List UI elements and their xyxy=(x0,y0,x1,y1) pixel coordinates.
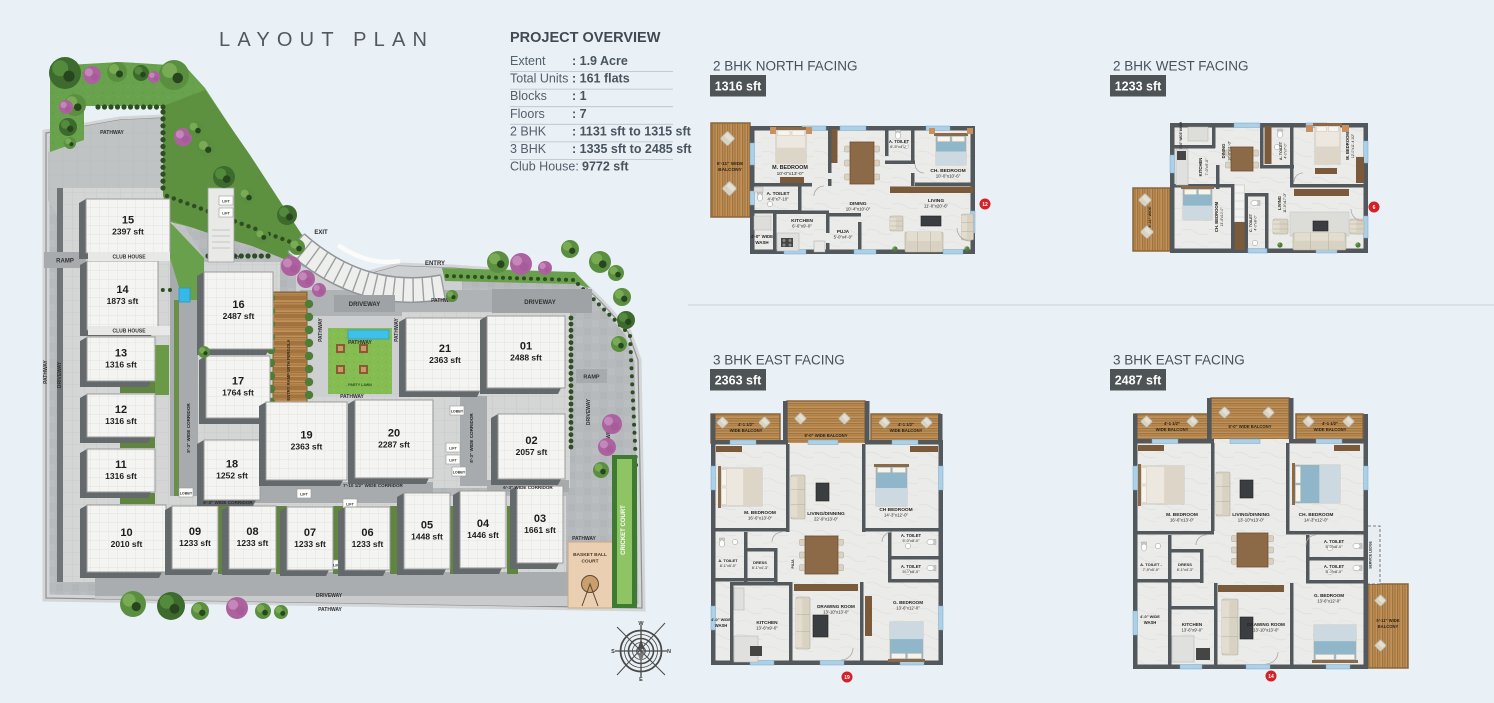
svg-text:PUJA: PUJA xyxy=(837,229,850,234)
svg-text:09: 09 xyxy=(189,526,201,538)
svg-text:05: 05 xyxy=(421,520,433,532)
svg-text:A. TOILET: A. TOILET xyxy=(1324,564,1345,569)
svg-text:20: 20 xyxy=(388,428,400,440)
svg-text:1316 sft: 1316 sft xyxy=(715,80,762,94)
svg-text:DINING: DINING xyxy=(1221,144,1226,159)
svg-text:13'-6"x9'-0": 13'-6"x9'-0" xyxy=(756,626,778,631)
svg-text:4'-0" WIDE: 4'-0" WIDE xyxy=(1140,614,1160,619)
svg-text:PATHWAY: PATHWAY xyxy=(100,130,124,136)
svg-text:PATHWAY: PATHWAY xyxy=(318,607,342,613)
svg-text:: 161 flats: : 161 flats xyxy=(572,72,630,86)
svg-text:A. TOILET: A. TOILET xyxy=(1324,539,1345,544)
svg-text:CRICKET COURT: CRICKET COURT xyxy=(621,505,627,555)
svg-text:LOBBY: LOBBY xyxy=(180,492,193,496)
svg-text:11: 11 xyxy=(115,459,127,471)
svg-text:7'-10 1/2" WIDE CORRIDOR: 7'-10 1/2" WIDE CORRIDOR xyxy=(343,483,403,488)
svg-text:: 1131 sft to 1315 sft: : 1131 sft to 1315 sft xyxy=(572,124,692,138)
svg-text:13'-10"x13'-0": 13'-10"x13'-0" xyxy=(823,609,849,614)
svg-text:2397 sft: 2397 sft xyxy=(112,227,144,237)
svg-text:1448 sft: 1448 sft xyxy=(411,532,443,542)
svg-text:WASH: WASH xyxy=(1144,620,1157,625)
svg-text:LIFT: LIFT xyxy=(222,200,230,204)
svg-text:1233 sft: 1233 sft xyxy=(1115,80,1162,94)
svg-text:7'-9"x5'-0": 7'-9"x5'-0" xyxy=(1143,568,1160,572)
svg-text:10'-4"x10'-0": 10'-4"x10'-0" xyxy=(846,207,871,212)
svg-text:3 BHK EAST FACING: 3 BHK EAST FACING xyxy=(1113,353,1245,368)
svg-text:9772 sft: 9772 sft xyxy=(582,160,629,174)
svg-text:3'-10" WIDE WASH: 3'-10" WIDE WASH xyxy=(1179,121,1183,150)
svg-text:DRAWING ROOM: DRAWING ROOM xyxy=(817,604,855,609)
svg-text:10'-0"x10'-6": 10'-0"x10'-6" xyxy=(936,174,961,179)
svg-text:12: 12 xyxy=(982,202,988,208)
svg-text:PUJA: PUJA xyxy=(791,559,795,569)
svg-text:WASH: WASH xyxy=(755,240,768,245)
svg-text:13'-10"x13'-0": 13'-10"x13'-0" xyxy=(1253,627,1279,632)
svg-text:Floors: Floors xyxy=(510,107,545,121)
svg-text:17: 17 xyxy=(232,376,244,388)
svg-text:ENTRY RAMP WITH PERGOLA: ENTRY RAMP WITH PERGOLA xyxy=(286,339,291,400)
svg-text:CLUB HOUSE: CLUB HOUSE xyxy=(112,329,146,335)
svg-text:6'-3" WIDE CORRIDOR: 6'-3" WIDE CORRIDOR xyxy=(203,500,253,505)
svg-text:1233 sft: 1233 sft xyxy=(237,538,269,548)
svg-text:N: N xyxy=(667,649,671,655)
svg-text:1316 sft: 1316 sft xyxy=(105,416,137,426)
svg-text:Blocks: Blocks xyxy=(510,89,547,103)
svg-text:15: 15 xyxy=(122,215,134,227)
svg-text:11'-0"x20'-6": 11'-0"x20'-6" xyxy=(924,204,949,209)
svg-text:8'-0" WIDE BALCONY: 8'-0" WIDE BALCONY xyxy=(805,433,848,438)
svg-text:2010 sft: 2010 sft xyxy=(111,539,143,549)
svg-text:01: 01 xyxy=(520,341,532,353)
svg-text:5'-0"x8'-0": 5'-0"x8'-0" xyxy=(1325,545,1343,549)
svg-text:14'-3"x12'-0": 14'-3"x12'-0" xyxy=(884,513,909,518)
svg-text:19: 19 xyxy=(844,675,850,681)
svg-text:10'-0"x11'-0": 10'-0"x11'-0" xyxy=(1228,140,1232,161)
svg-text:1446 sft: 1446 sft xyxy=(467,530,499,540)
svg-text:13'-6"x12'-0": 13'-6"x12'-0" xyxy=(896,605,920,610)
svg-text:3 BHK: 3 BHK xyxy=(510,142,547,156)
svg-text:LAYOUT PLAN: LAYOUT PLAN xyxy=(219,29,434,51)
svg-text:13'-10"x13'-0": 13'-10"x13'-0" xyxy=(1238,518,1265,523)
svg-text:1661 sft: 1661 sft xyxy=(524,525,556,535)
svg-text:8'-0" WIDE BALCONY: 8'-0" WIDE BALCONY xyxy=(1229,424,1272,429)
svg-text:LIFT: LIFT xyxy=(222,212,230,216)
svg-text:2363 sft: 2363 sft xyxy=(291,442,323,452)
svg-text:1873 sft: 1873 sft xyxy=(107,296,139,306)
svg-text:4'-0"x7'-0": 4'-0"x7'-0" xyxy=(1284,143,1288,159)
svg-text:4'-1 1/2": 4'-1 1/2" xyxy=(1164,421,1180,426)
svg-text:Extent: Extent xyxy=(510,54,546,68)
svg-text:6'-3" WIDE CORRIDOR: 6'-3" WIDE CORRIDOR xyxy=(503,485,553,490)
svg-text:22'-9"x13'-0": 22'-9"x13'-0" xyxy=(814,517,839,522)
svg-text:M. BEDROOM: M. BEDROOM xyxy=(1345,132,1350,160)
svg-text:DRESS: DRESS xyxy=(753,560,767,565)
svg-text:21: 21 xyxy=(439,343,451,355)
svg-text:BALCONY: BALCONY xyxy=(1378,624,1399,629)
svg-text:PATHWAY: PATHWAY xyxy=(340,394,364,400)
svg-text:Club House:: Club House: xyxy=(510,160,579,174)
svg-text:COURT: COURT xyxy=(581,559,598,565)
svg-text:18: 18 xyxy=(226,459,238,471)
svg-text:DRESS: DRESS xyxy=(1178,562,1192,567)
svg-text:: 1: : 1 xyxy=(572,89,587,103)
svg-text:5'-0"x8'-0": 5'-0"x8'-0" xyxy=(902,570,920,574)
svg-text:2057 sft: 2057 sft xyxy=(516,447,548,457)
svg-text:E: E xyxy=(639,677,643,683)
svg-text:5'-11" WIDE: 5'-11" WIDE xyxy=(717,161,744,167)
svg-text:ENTRY: ENTRY xyxy=(425,261,445,267)
svg-text:BALCONY: BALCONY xyxy=(718,167,743,173)
svg-text:5'-0"x8'-0": 5'-0"x8'-0" xyxy=(902,539,920,543)
svg-text:LOBBY: LOBBY xyxy=(453,471,466,475)
svg-text:EXIT: EXIT xyxy=(314,230,328,236)
svg-text:CLUB HOUSE: CLUB HOUSE xyxy=(112,255,146,261)
svg-text:G. BEDROOM: G. BEDROOM xyxy=(1314,593,1344,598)
svg-text:08: 08 xyxy=(246,526,258,538)
svg-text:16'-6"x13'-0": 16'-6"x13'-0" xyxy=(748,516,773,521)
svg-text:2 BHK NORTH FACING: 2 BHK NORTH FACING xyxy=(713,59,858,74)
svg-text:10'-0"x13'-0": 10'-0"x13'-0" xyxy=(777,171,804,177)
svg-text:4'-0"x8'-0": 4'-0"x8'-0" xyxy=(1254,215,1258,231)
svg-text:13'-6"x12'-0": 13'-6"x12'-0" xyxy=(1317,598,1341,603)
svg-text:1316 sft: 1316 sft xyxy=(105,471,137,481)
svg-text:06: 06 xyxy=(361,527,373,539)
svg-text:LIFT: LIFT xyxy=(300,493,308,497)
svg-text:14'-3"x12'-0": 14'-3"x12'-0" xyxy=(1304,518,1329,523)
svg-text:: 1.9 Acre: : 1.9 Acre xyxy=(572,54,628,68)
svg-text:2488 sft: 2488 sft xyxy=(510,353,542,363)
svg-text:11'-0"x17'-0": 11'-0"x17'-0" xyxy=(1283,192,1287,213)
svg-text:LIVING: LIVING xyxy=(1277,196,1282,210)
svg-text:4'-1 1/2": 4'-1 1/2" xyxy=(738,422,754,427)
svg-text:2363 sft: 2363 sft xyxy=(429,355,461,365)
svg-text:2363 sft: 2363 sft xyxy=(715,374,762,388)
svg-text:A. TOILET: A. TOILET xyxy=(718,558,738,563)
svg-text:PARTY LAWN: PARTY LAWN xyxy=(348,383,372,387)
svg-text:14: 14 xyxy=(1268,674,1274,680)
svg-text:: 1335 sft to 2485 sft: : 1335 sft to 2485 sft xyxy=(572,142,692,156)
svg-text:Total Units: Total Units xyxy=(510,72,568,86)
svg-text:5'-0"x4'-0": 5'-0"x4'-0" xyxy=(834,234,853,239)
svg-text:KITCHEN: KITCHEN xyxy=(1182,622,1203,627)
svg-text:LIFT: LIFT xyxy=(346,503,354,507)
svg-text:3 BHK EAST FACING: 3 BHK EAST FACING xyxy=(713,353,845,368)
svg-text:M. BEDROOM: M. BEDROOM xyxy=(772,165,808,171)
svg-text:6'-6"x9'-0": 6'-6"x9'-0" xyxy=(792,224,812,229)
svg-text:CH. BEDROOM: CH. BEDROOM xyxy=(1214,201,1219,232)
svg-text:4'-0" WIDE: 4'-0" WIDE xyxy=(751,234,773,239)
svg-text:A. TOILET: A. TOILET xyxy=(901,533,922,538)
svg-text:8'-1"x5'-0": 8'-1"x5'-0" xyxy=(720,564,737,568)
svg-text:LIFT: LIFT xyxy=(449,447,457,451)
svg-text:16: 16 xyxy=(232,299,244,311)
svg-text:DRAWING ROOM: DRAWING ROOM xyxy=(1247,622,1285,627)
svg-text:8'-1"x4'-3": 8'-1"x4'-3" xyxy=(1177,568,1194,572)
svg-text:4'-0" WIDE: 4'-0" WIDE xyxy=(711,617,731,622)
svg-text:2 BHK: 2 BHK xyxy=(510,124,547,138)
svg-text:8'-3" WIDE CORRIDOR: 8'-3" WIDE CORRIDOR xyxy=(469,413,474,463)
svg-text:1252 sft: 1252 sft xyxy=(216,471,248,481)
svg-text:8'-3" WIDE CORRIDOR: 8'-3" WIDE CORRIDOR xyxy=(186,403,191,453)
svg-text:04: 04 xyxy=(477,518,490,530)
svg-text:WIDE BALCONY: WIDE BALCONY xyxy=(890,428,923,433)
svg-text:12: 12 xyxy=(115,404,127,416)
svg-text:12'-0"x11'-4 1/2": 12'-0"x11'-4 1/2" xyxy=(1351,133,1355,158)
svg-text:8'-1"x4'-3": 8'-1"x4'-3" xyxy=(752,566,769,570)
svg-text:02: 02 xyxy=(525,435,537,447)
svg-text:5'-11" WIDE: 5'-11" WIDE xyxy=(1376,618,1399,623)
svg-text:BASKET BALL: BASKET BALL xyxy=(573,552,607,558)
svg-text:PATHWAY: PATHWAY xyxy=(572,536,596,542)
svg-text:5'-0"x8'-0": 5'-0"x8'-0" xyxy=(1325,570,1343,574)
svg-text:DRIVEWAY: DRIVEWAY xyxy=(57,361,63,388)
svg-text:2 BHK WEST FACING: 2 BHK WEST FACING xyxy=(1113,59,1249,74)
svg-text:PATHWAY: PATHWAY xyxy=(43,359,49,383)
svg-text:RAMP: RAMP xyxy=(56,259,74,265)
svg-text:PATHWAY: PATHWAY xyxy=(318,317,324,341)
svg-text:SERVICE LEDGE: SERVICE LEDGE xyxy=(1369,541,1373,569)
svg-text:C. TOILET: C. TOILET xyxy=(1249,213,1253,232)
svg-text:DRIVEWAY: DRIVEWAY xyxy=(349,302,380,308)
svg-text:WIDE BALCONY: WIDE BALCONY xyxy=(1156,427,1189,432)
svg-text:WIDE BALCONY: WIDE BALCONY xyxy=(730,428,763,433)
svg-text:DRIVEWAY: DRIVEWAY xyxy=(524,300,555,306)
svg-text:A. TOILET: A. TOILET xyxy=(901,564,922,569)
svg-text:2487 sft: 2487 sft xyxy=(223,311,255,321)
svg-text:1316 sft: 1316 sft xyxy=(105,360,137,370)
svg-text:PATHWAY: PATHWAY xyxy=(348,340,372,346)
svg-text:4'-1 1/2": 4'-1 1/2" xyxy=(898,422,914,427)
svg-text:8'-11" WIDE: 8'-11" WIDE xyxy=(1148,206,1152,228)
svg-text:A. TOILET: A. TOILET xyxy=(1279,141,1283,160)
svg-text:10: 10 xyxy=(120,527,132,539)
svg-text:LIFT: LIFT xyxy=(449,459,457,463)
svg-text:2487 sft: 2487 sft xyxy=(1115,374,1162,388)
svg-text:KITCHEN: KITCHEN xyxy=(1198,158,1203,177)
svg-text:WASH: WASH xyxy=(715,623,728,628)
svg-text:07: 07 xyxy=(304,527,316,539)
svg-text:2287 sft: 2287 sft xyxy=(378,440,410,450)
svg-text:1233 sft: 1233 sft xyxy=(294,539,326,549)
svg-text:13'-6"x9'-0": 13'-6"x9'-0" xyxy=(1181,627,1203,632)
svg-text:PROJECT OVERVIEW: PROJECT OVERVIEW xyxy=(510,30,661,46)
svg-text:13'-4"x10'-0": 13'-4"x10'-0" xyxy=(1220,207,1224,227)
svg-text:W: W xyxy=(638,621,644,627)
svg-text:A. TOILET -: A. TOILET - xyxy=(1140,562,1162,567)
svg-text:6'-5"x4'-2": 6'-5"x4'-2" xyxy=(890,144,908,149)
svg-text:03: 03 xyxy=(534,513,546,525)
svg-text:19: 19 xyxy=(300,430,312,442)
svg-text:1233 sft: 1233 sft xyxy=(179,538,211,548)
svg-text:7'-0"x9'-0": 7'-0"x9'-0" xyxy=(1205,158,1209,176)
svg-text:G. BEDROOM: G. BEDROOM xyxy=(893,600,923,605)
svg-text:4'-6"x7'-10": 4'-6"x7'-10" xyxy=(767,196,789,201)
svg-text:6: 6 xyxy=(1373,205,1376,211)
svg-text:1233 sft: 1233 sft xyxy=(352,539,384,549)
svg-text:S: S xyxy=(611,649,615,655)
svg-text:LOBBY: LOBBY xyxy=(451,410,464,414)
svg-text:4'-1 1/2": 4'-1 1/2" xyxy=(1322,421,1338,426)
svg-text:1764 sft: 1764 sft xyxy=(222,388,254,398)
svg-text:WIDE BALCONY: WIDE BALCONY xyxy=(1314,427,1347,432)
svg-text:13: 13 xyxy=(115,348,127,360)
svg-text:14: 14 xyxy=(116,284,129,296)
svg-text:DRIVEWAY: DRIVEWAY xyxy=(316,593,343,599)
svg-text:16'-6"x13'-0": 16'-6"x13'-0" xyxy=(1170,518,1195,523)
svg-text:DRIVEWAY: DRIVEWAY xyxy=(586,398,592,425)
svg-text:: 7: : 7 xyxy=(572,107,587,121)
svg-text:RAMP: RAMP xyxy=(583,375,600,381)
